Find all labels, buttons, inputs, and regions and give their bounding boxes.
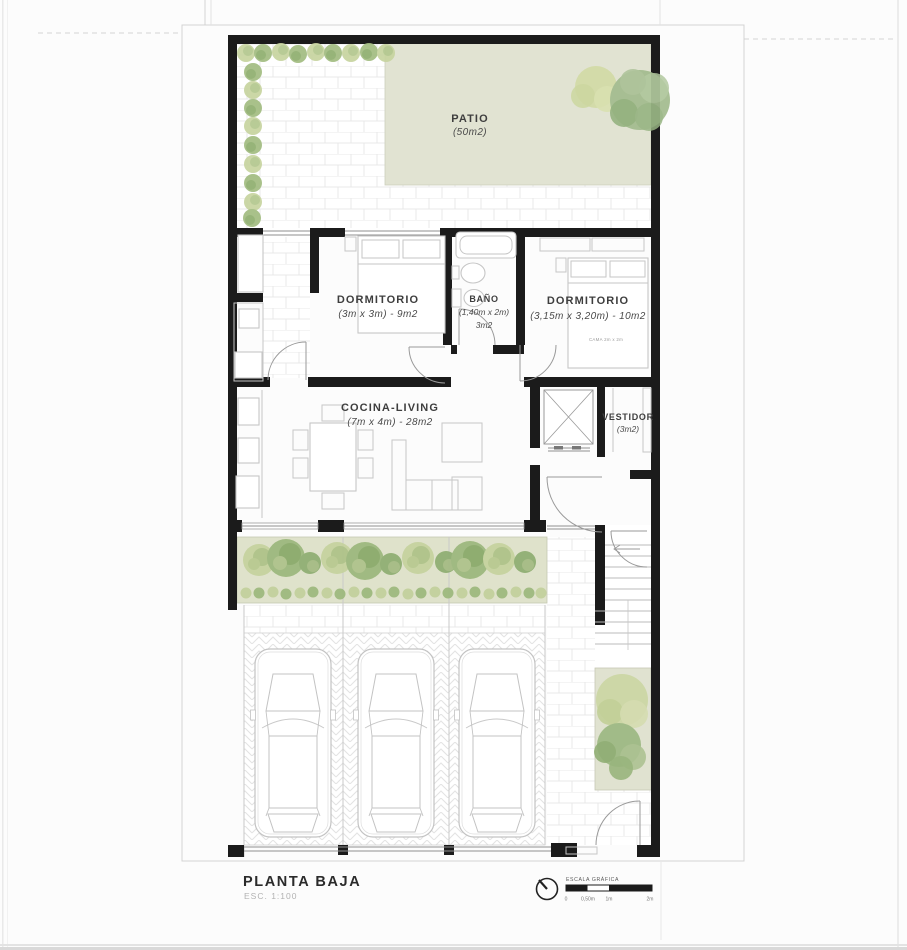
- scale-tick-0: 0: [565, 897, 568, 903]
- patio-hedge-left: [243, 63, 262, 227]
- bathroom-area: 3m2: [476, 320, 493, 330]
- scale-bar: [566, 885, 652, 891]
- scale-tick-050: 0,50m: [581, 897, 595, 903]
- scale-tick-2m: 2m: [647, 897, 654, 903]
- car: [354, 649, 439, 837]
- window-kitchen-garden-2: [344, 523, 524, 529]
- bed-size-note: CAMA 2m x 2m: [589, 337, 623, 342]
- side-passage-paving: [263, 236, 310, 378]
- car: [251, 649, 336, 837]
- floor-plan-drawing: PATIO (50m2) DORMITORIO (3m x 3m) - 9m2 …: [0, 0, 907, 950]
- bedroom-2-label: DORMITORIO: [547, 295, 629, 307]
- bedroom-1-dims: (3m x 3m) - 9m2: [338, 309, 417, 320]
- patio-label: PATIO: [451, 113, 488, 125]
- plan-title: PLANTA BAJA: [243, 874, 361, 890]
- dressing-room-label: VESTIDOR: [602, 412, 654, 422]
- kitchen-counter: [236, 390, 262, 518]
- bathtub: [456, 232, 516, 258]
- kitchen-living-label: COCINA-LIVING: [341, 402, 439, 414]
- bedroom-2-dims: (3,15m x 3,20m) - 10m2: [530, 311, 646, 322]
- patio-hedge-top: [237, 43, 395, 63]
- scale-bar-title: ESCALA GRÁFICA: [566, 876, 619, 883]
- floor-plan-page: PATIO (50m2) DORMITORIO (3m x 3m) - 9m2 …: [0, 0, 907, 950]
- bathroom-label: BAÑO: [469, 294, 498, 304]
- plan-scale-label: ESC. 1:100: [244, 891, 297, 901]
- driveway-paving: [244, 605, 545, 633]
- window-kitchen-garden-1: [242, 523, 318, 529]
- elevator: [544, 390, 593, 451]
- bathroom-dims: (1,40m x 2m): [459, 307, 509, 317]
- scale-tick-1m: 1m: [606, 897, 613, 903]
- car: [455, 649, 540, 837]
- window-left-strip: [263, 228, 310, 237]
- dressing-room-dims: (3m2): [617, 424, 639, 434]
- patio-dims: (50m2): [453, 127, 487, 138]
- bedroom-1-label: DORMITORIO: [337, 294, 419, 306]
- parked-cars: [251, 649, 540, 837]
- kitchen-living-dims: (7m x 4m) - 28m2: [347, 417, 432, 428]
